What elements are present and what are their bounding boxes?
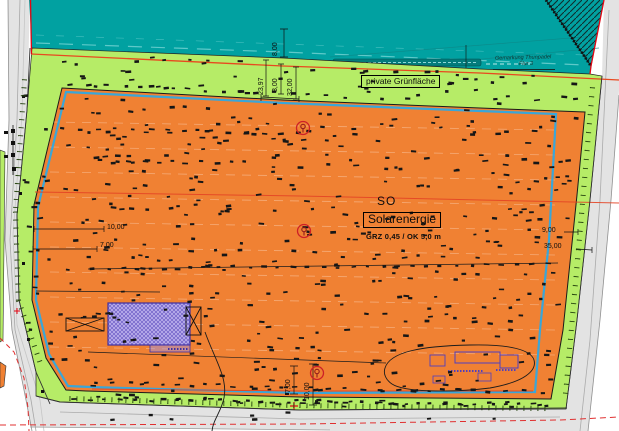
dim-road-width-label: 8,00: [272, 42, 279, 56]
dim-bottom-7-label: 7,00: [285, 379, 292, 393]
site-plan: SO Solarenergie GRZ 0,45 / OK 5,0 m priv…: [0, 0, 619, 431]
dim-left-10-label: 10,00: [107, 224, 125, 231]
zone-grz-label: GRZ 0,45 / OK 5,0 m: [366, 233, 441, 241]
dim-3-00-label: 3,00: [272, 78, 279, 92]
dim-left-7-label: 7,00: [100, 242, 114, 249]
gemarkung-underline: [493, 69, 555, 70]
zone-name-box: Solarenergie: [363, 212, 441, 228]
zone-code-label: SO: [377, 195, 396, 208]
dim-bottom-10-label: 10,00: [304, 382, 311, 400]
dim-right-35-label: 35,00: [544, 243, 562, 250]
margin-orange-sliver: [0, 362, 6, 388]
solar-substation-building: [108, 303, 190, 345]
dim-23-97-label: 23,97: [258, 77, 265, 95]
dim-32-00-label: 32,00: [287, 78, 294, 96]
margin-green-sliver: [0, 150, 5, 342]
green-area-label: private Grünfläche: [361, 75, 440, 88]
dim-right-9-label: 9,00: [542, 227, 556, 234]
gemarkung-label-line2: Flur 3: [519, 62, 533, 68]
